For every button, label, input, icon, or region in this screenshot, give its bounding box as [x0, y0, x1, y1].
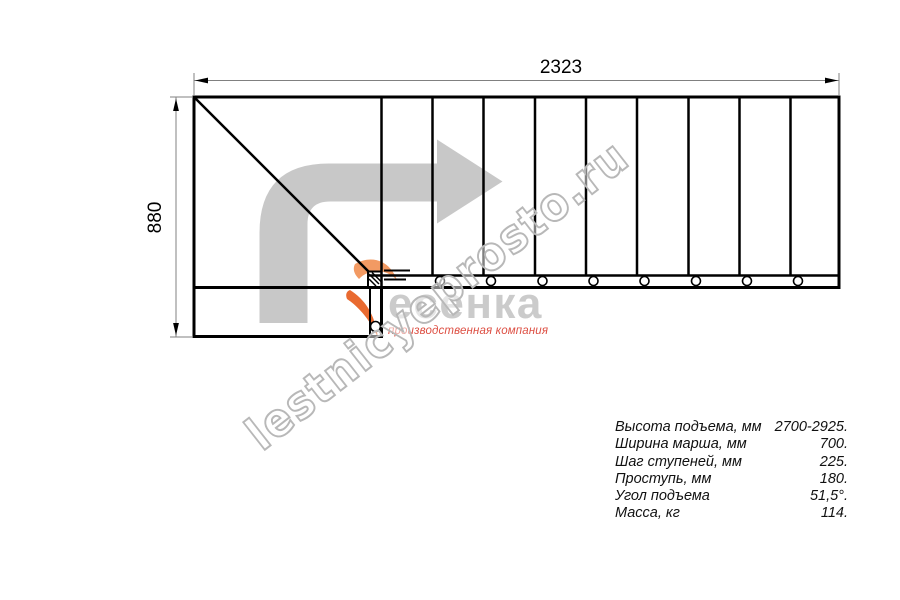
bolt-hole: [640, 277, 649, 286]
spec-label: Масса, кг: [615, 505, 680, 522]
spec-value: 2700-2925.: [775, 419, 848, 436]
spec-row: Ширина марша, мм 700.: [615, 436, 848, 453]
spec-value: 51,5°.: [810, 488, 848, 505]
spec-row: Высота подъема, мм 2700-2925.: [615, 419, 848, 436]
dimension-arrow: [825, 78, 838, 84]
spec-label: Высота подъема, мм: [615, 419, 762, 436]
bolt-hole: [538, 277, 547, 286]
spec-label: Ширина марша, мм: [615, 436, 747, 453]
spec-value: 225.: [820, 454, 848, 471]
spec-value: 180.: [820, 471, 848, 488]
dimension-arrow: [195, 78, 208, 84]
spec-value: 114.: [821, 505, 848, 522]
hatch-line: [372, 273, 381, 282]
spec-row: Проступь, мм 180.: [615, 471, 848, 488]
spec-value: 700.: [820, 436, 848, 453]
bolt-hole: [794, 277, 803, 286]
dimension-arrow: [173, 99, 179, 112]
spec-label: Шаг ступеней, мм: [615, 454, 742, 471]
dimension-arrow: [173, 323, 179, 336]
spec-row: Шаг ступеней, мм 225.: [615, 454, 848, 471]
bolt-hole: [692, 277, 701, 286]
spec-row: Угол подъема 51,5°.: [615, 488, 848, 505]
bolt-hole: [743, 277, 752, 286]
bolt-hole: [589, 277, 598, 286]
spec-label: Проступь, мм: [615, 471, 711, 488]
spec-row: Масса, кг 114.: [615, 505, 848, 522]
spec-label: Угол подъема: [615, 488, 710, 505]
specs-table: Высота подъема, мм 2700-2925. Ширина мар…: [615, 419, 848, 523]
dimension-height-label: 880: [145, 202, 166, 234]
dimension-width-label: 2323: [540, 57, 582, 78]
